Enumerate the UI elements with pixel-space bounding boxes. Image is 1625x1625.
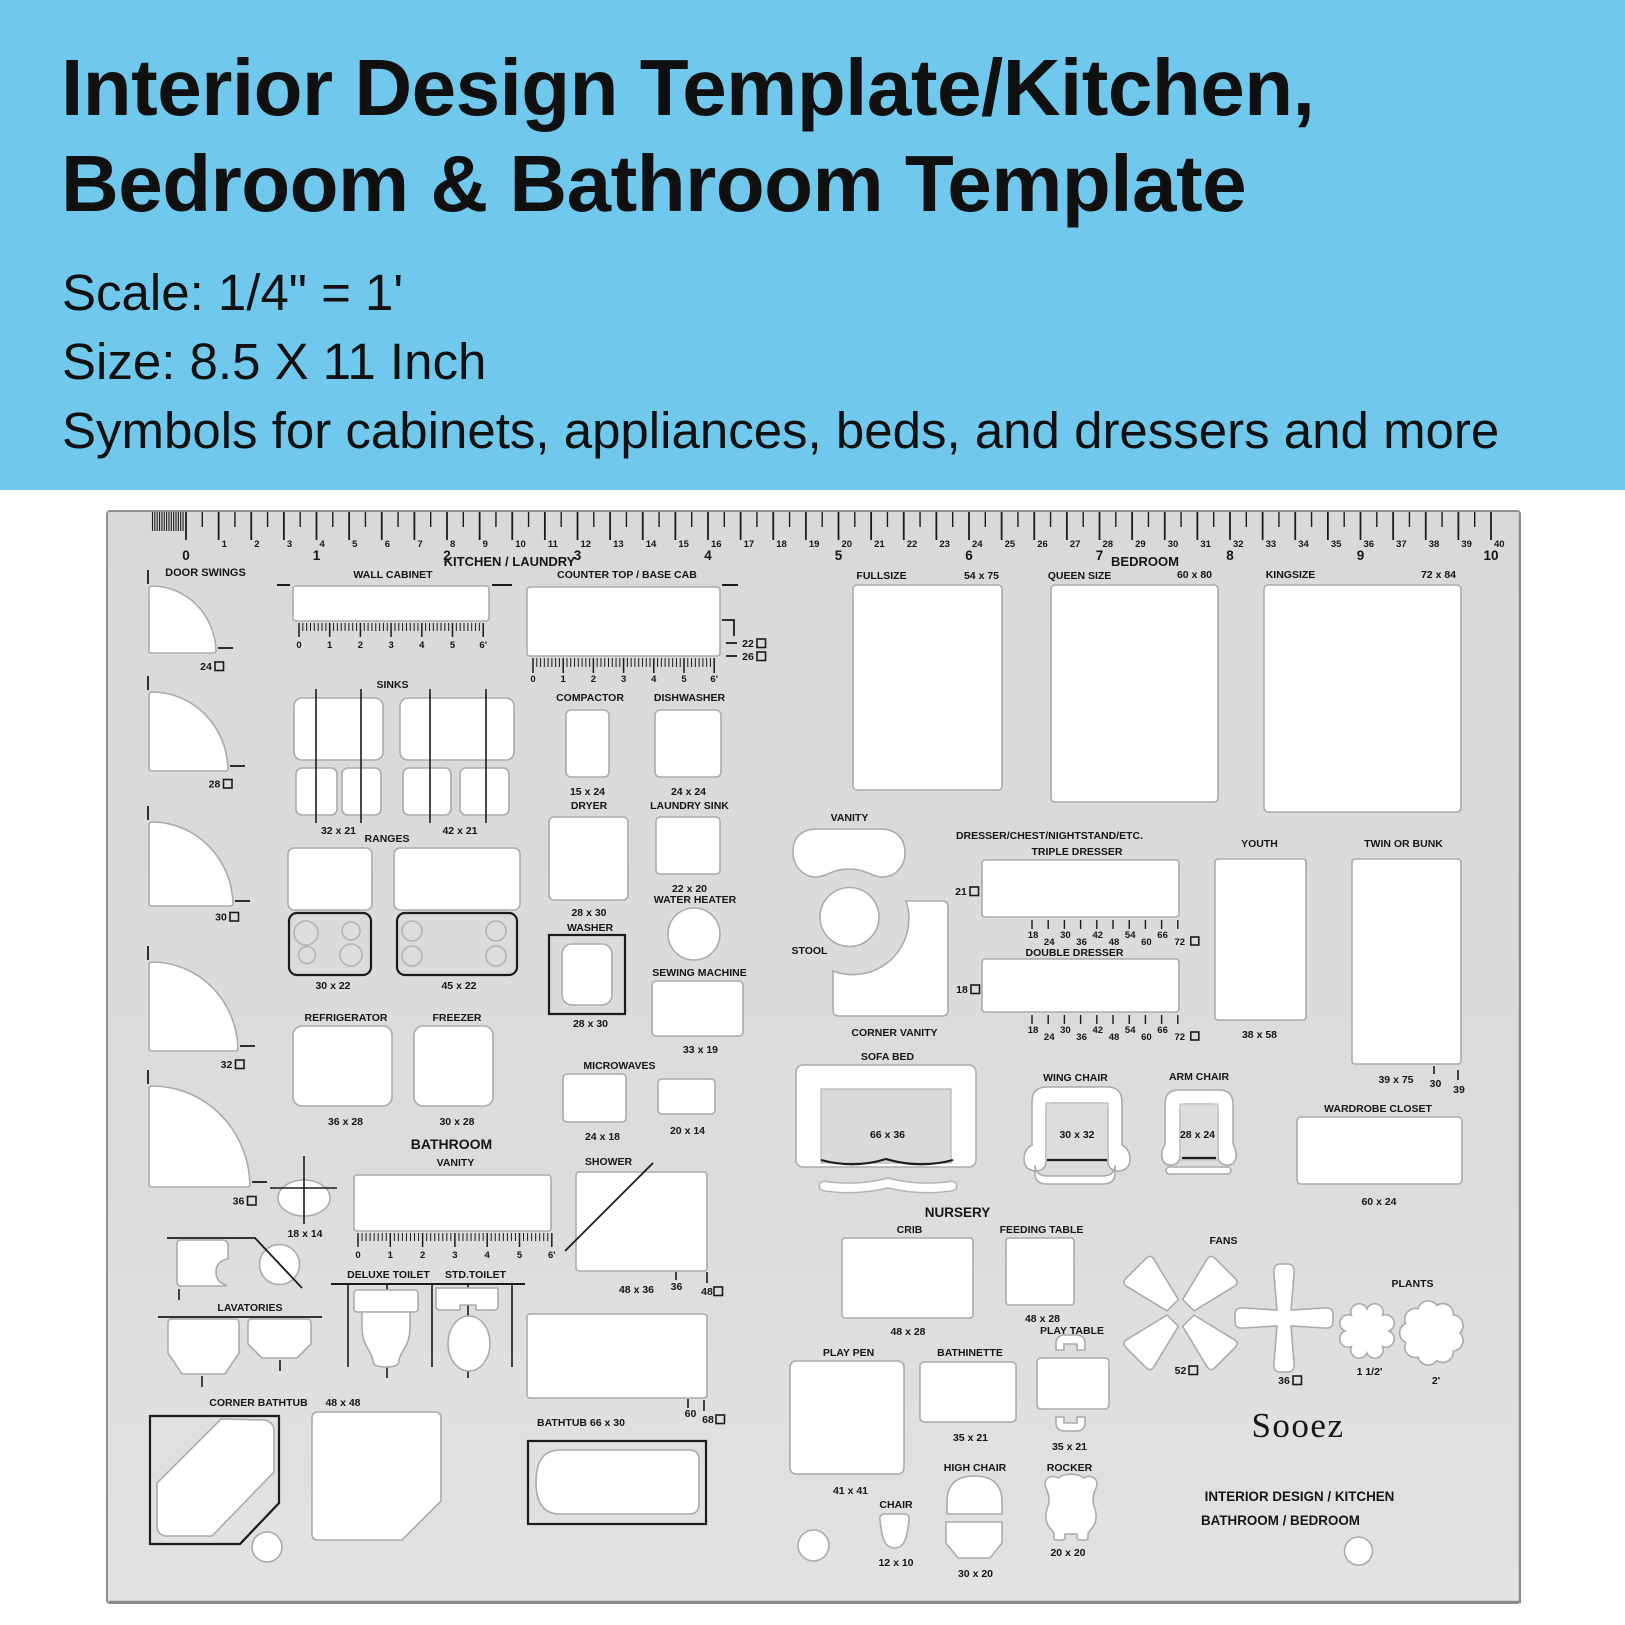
svg-text:33 x 19: 33 x 19 (683, 1044, 718, 1056)
svg-text:4: 4 (704, 548, 712, 563)
svg-text:5: 5 (450, 640, 456, 651)
svg-text:ARM CHAIR: ARM CHAIR (1169, 1071, 1229, 1083)
svg-text:68: 68 (702, 1414, 714, 1426)
svg-text:2: 2 (420, 1250, 425, 1261)
svg-text:ROCKER: ROCKER (1047, 1462, 1093, 1474)
svg-text:24 x 24: 24 x 24 (671, 786, 706, 798)
svg-text:72: 72 (1175, 937, 1186, 948)
svg-text:CORNER BATHTUB: CORNER BATHTUB (209, 1397, 308, 1409)
svg-text:RANGES: RANGES (365, 833, 410, 845)
svg-text:60: 60 (1141, 1032, 1152, 1043)
svg-text:4: 4 (485, 1250, 491, 1261)
svg-text:6': 6' (548, 1250, 556, 1261)
svg-text:BATHROOM / BEDROOM: BATHROOM / BEDROOM (1201, 1513, 1360, 1528)
svg-text:5: 5 (681, 674, 687, 685)
svg-text:WATER HEATER: WATER HEATER (654, 894, 737, 906)
svg-text:FEEDING TABLE: FEEDING TABLE (1000, 1224, 1084, 1236)
svg-text:20 x 20: 20 x 20 (1050, 1547, 1085, 1559)
svg-text:42 x 21: 42 x 21 (442, 825, 477, 837)
svg-text:TRIPLE DRESSER: TRIPLE DRESSER (1031, 846, 1122, 858)
svg-text:28 x 24: 28 x 24 (1180, 1129, 1215, 1141)
svg-text:15 x 24: 15 x 24 (570, 786, 605, 798)
svg-text:34: 34 (1298, 539, 1309, 550)
svg-text:BATHTUB 66 x 30: BATHTUB 66 x 30 (537, 1417, 625, 1429)
svg-text:48: 48 (701, 1286, 713, 1298)
svg-text:15: 15 (678, 539, 689, 550)
svg-text:16: 16 (711, 539, 722, 550)
svg-text:48 x 48: 48 x 48 (325, 1397, 360, 1409)
svg-text:5: 5 (517, 1250, 523, 1261)
svg-text:39: 39 (1453, 1084, 1465, 1096)
svg-text:52: 52 (1175, 1365, 1187, 1377)
svg-text:LAUNDRY SINK: LAUNDRY SINK (650, 800, 729, 812)
svg-text:48 x 28: 48 x 28 (890, 1326, 925, 1338)
svg-text:20 x 14: 20 x 14 (670, 1125, 705, 1137)
svg-text:11: 11 (548, 539, 559, 550)
svg-text:COMPACTOR: COMPACTOR (556, 692, 624, 704)
svg-text:28: 28 (1103, 539, 1114, 550)
svg-text:66: 66 (1157, 1025, 1168, 1036)
svg-text:7: 7 (417, 539, 422, 550)
svg-text:54 x 75: 54 x 75 (964, 570, 999, 582)
svg-text:CHAIR: CHAIR (879, 1499, 913, 1511)
svg-text:DRYER: DRYER (571, 800, 608, 812)
svg-text:VANITY: VANITY (831, 812, 869, 824)
svg-text:0: 0 (182, 548, 190, 563)
svg-text:LAVATORIES: LAVATORIES (217, 1302, 282, 1314)
svg-text:18: 18 (956, 984, 968, 996)
svg-text:12 x 10: 12 x 10 (878, 1557, 913, 1569)
svg-text:5: 5 (352, 539, 358, 550)
svg-text:66 x 36: 66 x 36 (870, 1129, 905, 1141)
svg-text:36 x 28: 36 x 28 (328, 1116, 363, 1128)
svg-text:CRIB: CRIB (897, 1224, 923, 1236)
svg-text:3: 3 (388, 640, 393, 651)
svg-text:4: 4 (651, 674, 657, 685)
svg-text:NURSERY: NURSERY (925, 1205, 991, 1220)
svg-text:14: 14 (646, 539, 657, 550)
svg-text:36: 36 (1364, 539, 1375, 550)
svg-text:66: 66 (1157, 930, 1168, 941)
svg-text:24: 24 (200, 661, 212, 673)
svg-text:8: 8 (450, 539, 455, 550)
svg-text:24: 24 (1044, 1032, 1055, 1043)
svg-text:28 x 30: 28 x 30 (571, 907, 606, 919)
svg-text:0: 0 (530, 674, 535, 685)
svg-text:24 x 18: 24 x 18 (585, 1131, 620, 1143)
svg-text:CORNER VANITY: CORNER VANITY (851, 1027, 937, 1039)
svg-text:18 x 14: 18 x 14 (287, 1228, 322, 1240)
svg-text:1: 1 (327, 640, 333, 651)
svg-text:30 x 32: 30 x 32 (1059, 1129, 1094, 1141)
svg-text:10: 10 (1483, 548, 1498, 563)
svg-text:DELUXE TOILET: DELUXE TOILET (347, 1269, 430, 1281)
svg-text:28 x 30: 28 x 30 (573, 1018, 608, 1030)
svg-text:22: 22 (742, 638, 754, 650)
svg-text:39 x 75: 39 x 75 (1378, 1074, 1413, 1086)
svg-text:1: 1 (313, 548, 321, 563)
svg-text:4: 4 (419, 640, 425, 651)
svg-text:DRESSER/CHEST/NIGHTSTAND/ETC.: DRESSER/CHEST/NIGHTSTAND/ETC. (956, 830, 1143, 842)
svg-text:30: 30 (1430, 1078, 1442, 1090)
svg-text:30: 30 (215, 912, 227, 924)
svg-text:19: 19 (809, 539, 820, 550)
svg-text:12: 12 (581, 539, 592, 550)
svg-text:72 x 84: 72 x 84 (1421, 569, 1456, 581)
svg-text:31: 31 (1200, 539, 1211, 550)
svg-text:COUNTER TOP / BASE CAB: COUNTER TOP / BASE CAB (557, 569, 697, 581)
svg-text:60: 60 (685, 1408, 697, 1420)
svg-text:HIGH CHAIR: HIGH CHAIR (944, 1462, 1007, 1474)
svg-text:BEDROOM: BEDROOM (1111, 554, 1179, 569)
svg-text:BATHINETTE: BATHINETTE (937, 1347, 1003, 1359)
svg-text:36: 36 (233, 1196, 245, 1208)
svg-text:23: 23 (939, 539, 950, 550)
svg-text:DOOR SWINGS: DOOR SWINGS (165, 567, 246, 579)
svg-text:32: 32 (221, 1059, 233, 1071)
svg-text:WARDROBE CLOSET: WARDROBE CLOSET (1324, 1103, 1433, 1115)
svg-text:30: 30 (1060, 1025, 1071, 1036)
svg-text:35 x 21: 35 x 21 (1052, 1441, 1087, 1453)
svg-text:REFRIGERATOR: REFRIGERATOR (304, 1012, 387, 1024)
svg-text:32 x 21: 32 x 21 (321, 825, 356, 837)
svg-text:QUEEN SIZE: QUEEN SIZE (1048, 570, 1112, 582)
svg-text:60 x 80: 60 x 80 (1177, 569, 1212, 581)
svg-text:KINGSIZE: KINGSIZE (1266, 569, 1316, 581)
svg-text:24: 24 (972, 539, 983, 550)
svg-text:42: 42 (1093, 1025, 1104, 1036)
svg-text:SOFA BED: SOFA BED (861, 1051, 915, 1063)
svg-text:26: 26 (742, 651, 754, 663)
svg-text:3: 3 (452, 1250, 457, 1261)
svg-text:9: 9 (1357, 548, 1365, 563)
svg-text:WALL CABINET: WALL CABINET (353, 569, 433, 581)
svg-text:39: 39 (1461, 539, 1472, 550)
svg-text:54: 54 (1125, 930, 1136, 941)
svg-text:0: 0 (296, 640, 301, 651)
svg-text:72: 72 (1175, 1032, 1186, 1043)
svg-text:41 x 41: 41 x 41 (833, 1485, 868, 1497)
svg-text:18: 18 (1028, 930, 1039, 941)
svg-text:28: 28 (209, 779, 221, 791)
svg-text:4: 4 (320, 539, 326, 550)
svg-text:60 x 24: 60 x 24 (1361, 1196, 1396, 1208)
svg-text:30: 30 (1168, 539, 1179, 550)
svg-text:YOUTH: YOUTH (1241, 838, 1278, 850)
svg-text:FULLSIZE: FULLSIZE (856, 570, 906, 582)
svg-text:8: 8 (1226, 548, 1234, 563)
svg-text:5: 5 (835, 548, 843, 563)
svg-text:33: 33 (1266, 539, 1277, 550)
svg-text:48 x 28: 48 x 28 (1025, 1313, 1060, 1325)
svg-text:10: 10 (515, 539, 526, 550)
svg-text:2: 2 (591, 674, 596, 685)
svg-text:25: 25 (1005, 539, 1016, 550)
svg-text:FANS: FANS (1209, 1235, 1237, 1247)
svg-text:21: 21 (874, 539, 885, 550)
svg-text:42: 42 (1093, 930, 1104, 941)
svg-text:22: 22 (907, 539, 918, 550)
svg-text:60: 60 (1141, 937, 1152, 948)
svg-text:30 x 22: 30 x 22 (315, 980, 350, 992)
svg-text:21: 21 (955, 886, 967, 898)
svg-text:37: 37 (1396, 539, 1407, 550)
svg-text:36: 36 (1076, 1032, 1087, 1043)
svg-text:6: 6 (385, 539, 390, 550)
svg-text:WING CHAIR: WING CHAIR (1043, 1072, 1108, 1084)
svg-text:36: 36 (1278, 1375, 1290, 1387)
svg-text:SEWING MACHINE: SEWING MACHINE (652, 967, 747, 979)
svg-text:INTERIOR DESIGN / KITCHEN: INTERIOR DESIGN / KITCHEN (1205, 1489, 1395, 1504)
svg-text:STOOL: STOOL (792, 945, 829, 957)
svg-text:32: 32 (1233, 539, 1244, 550)
svg-text:20: 20 (842, 539, 853, 550)
svg-text:1: 1 (561, 674, 567, 685)
svg-text:Sooez: Sooez (1251, 1406, 1344, 1445)
svg-text:1 1/2': 1 1/2' (1357, 1366, 1383, 1378)
svg-text:3: 3 (287, 539, 292, 550)
svg-text:18: 18 (776, 539, 787, 550)
svg-text:35: 35 (1331, 539, 1342, 550)
svg-text:6: 6 (965, 548, 973, 563)
svg-text:2: 2 (254, 539, 259, 550)
svg-text:17: 17 (744, 539, 755, 550)
svg-text:27: 27 (1070, 539, 1081, 550)
svg-text:SINKS: SINKS (376, 679, 408, 691)
svg-text:29: 29 (1135, 539, 1146, 550)
svg-text:TWIN OR BUNK: TWIN OR BUNK (1364, 838, 1443, 850)
svg-text:6': 6' (479, 640, 487, 651)
svg-text:36: 36 (671, 1281, 683, 1293)
svg-text:7: 7 (1096, 548, 1104, 563)
svg-text:1: 1 (222, 539, 228, 550)
svg-text:BATHROOM: BATHROOM (411, 1136, 492, 1152)
svg-text:38 x 58: 38 x 58 (1242, 1029, 1277, 1041)
svg-text:30 x 28: 30 x 28 (439, 1116, 474, 1128)
svg-text:30 x 20: 30 x 20 (958, 1568, 993, 1580)
svg-text:30: 30 (1060, 930, 1071, 941)
svg-text:0: 0 (355, 1250, 360, 1261)
svg-text:3: 3 (621, 674, 626, 685)
svg-text:13: 13 (613, 539, 624, 550)
svg-text:35 x 21: 35 x 21 (953, 1432, 988, 1444)
svg-text:45 x 22: 45 x 22 (441, 980, 476, 992)
svg-text:48 x 36: 48 x 36 (619, 1284, 654, 1296)
svg-text:54: 54 (1125, 1025, 1136, 1036)
svg-text:KITCHEN / LAUNDRY: KITCHEN / LAUNDRY (444, 554, 576, 569)
svg-text:18: 18 (1028, 1025, 1039, 1036)
svg-text:DOUBLE DRESSER: DOUBLE DRESSER (1025, 947, 1123, 959)
svg-text:SHOWER: SHOWER (585, 1156, 633, 1168)
svg-text:DISHWASHER: DISHWASHER (654, 692, 726, 704)
svg-text:1: 1 (388, 1250, 394, 1261)
svg-text:2: 2 (358, 640, 363, 651)
svg-text:STD.TOILET: STD.TOILET (445, 1269, 507, 1281)
svg-text:PLAY PEN: PLAY PEN (823, 1347, 874, 1359)
svg-text:38: 38 (1429, 539, 1440, 550)
svg-text:48: 48 (1109, 1032, 1120, 1043)
svg-text:FREEZER: FREEZER (432, 1012, 481, 1024)
svg-text:PLANTS: PLANTS (1392, 1278, 1434, 1290)
svg-text:MICROWAVES: MICROWAVES (583, 1060, 655, 1072)
svg-text:26: 26 (1037, 539, 1048, 550)
svg-text:2': 2' (1432, 1375, 1440, 1387)
svg-text:6': 6' (710, 674, 718, 685)
svg-text:9: 9 (483, 539, 488, 550)
svg-text:VANITY: VANITY (437, 1157, 475, 1169)
svg-text:WASHER: WASHER (567, 922, 614, 934)
